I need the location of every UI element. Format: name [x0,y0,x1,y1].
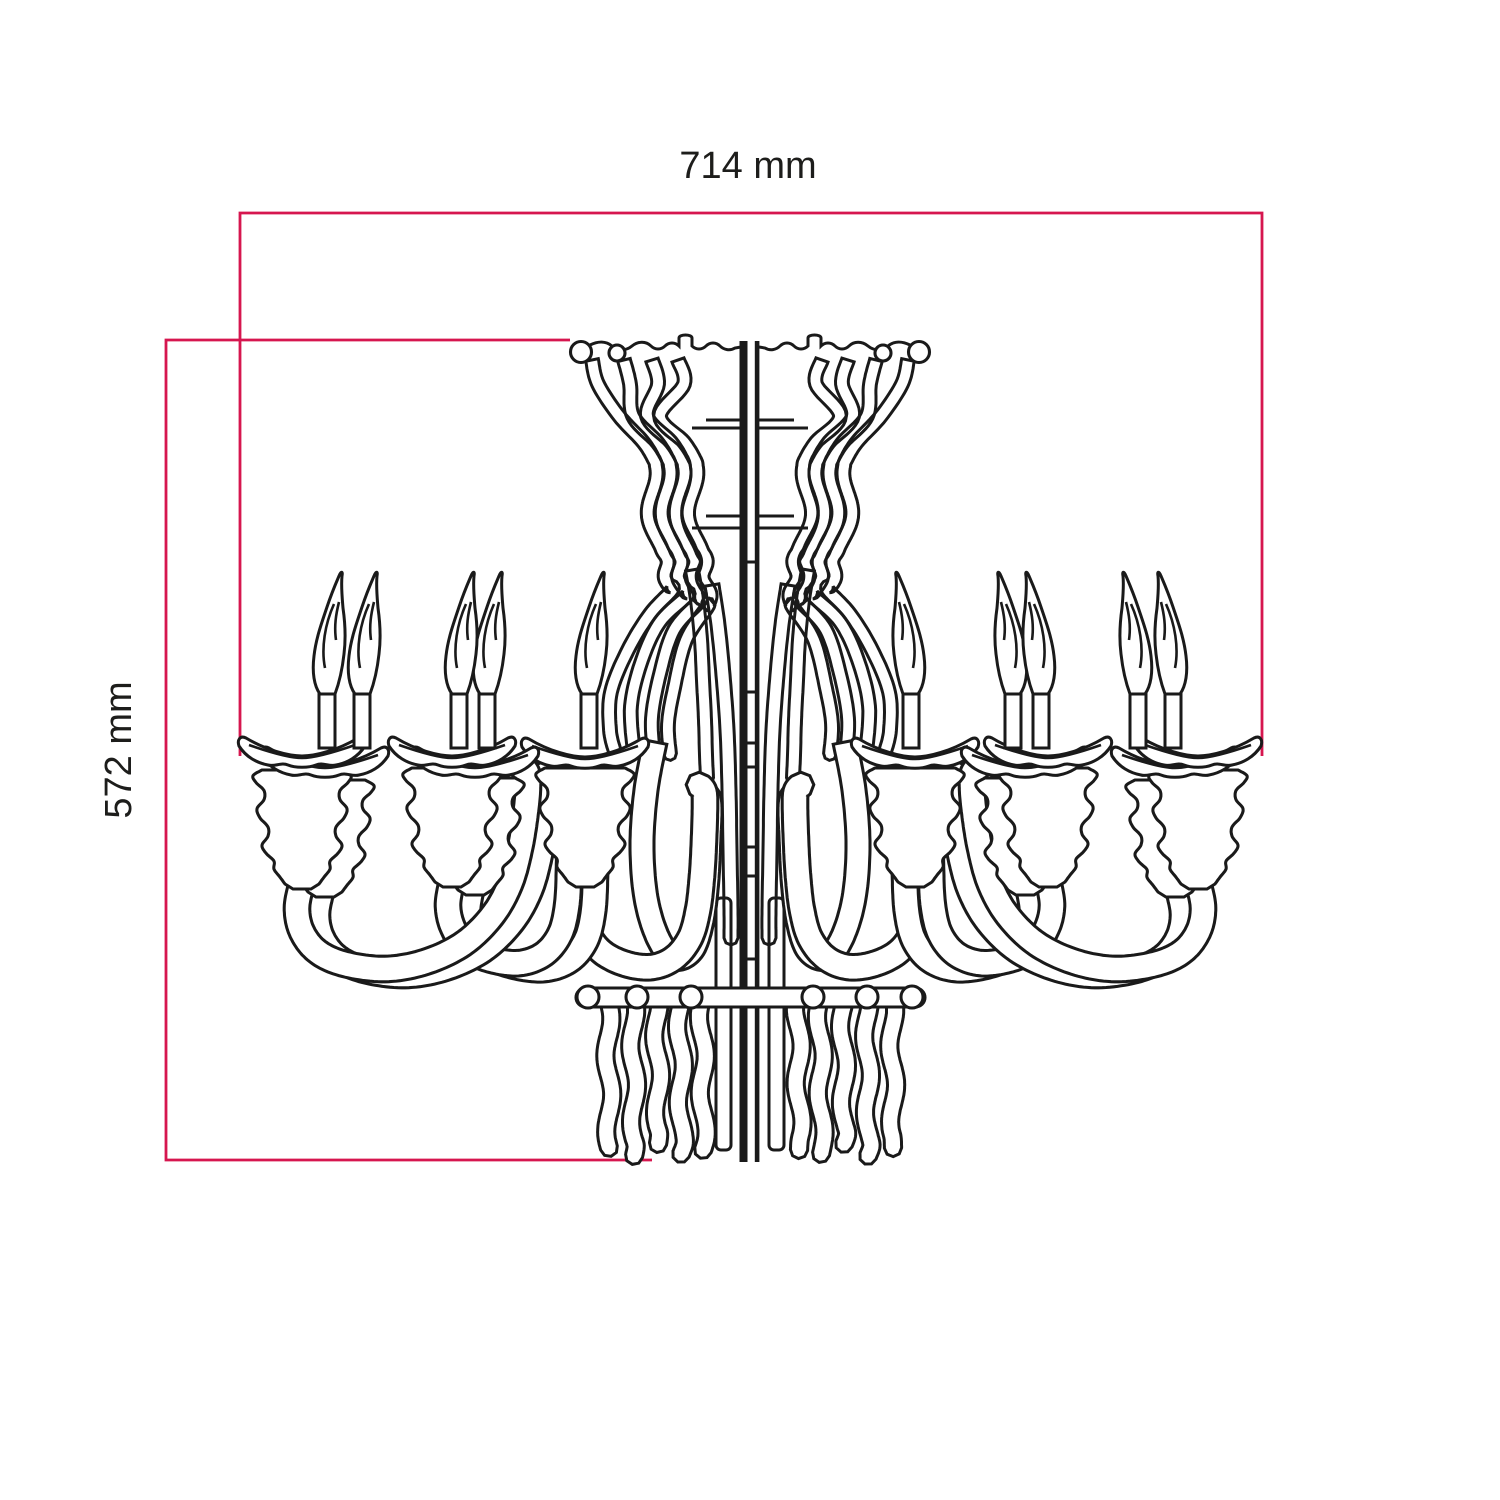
svg-text:714 mm: 714 mm [679,145,816,187]
svg-text:572 mm: 572 mm [98,681,140,818]
